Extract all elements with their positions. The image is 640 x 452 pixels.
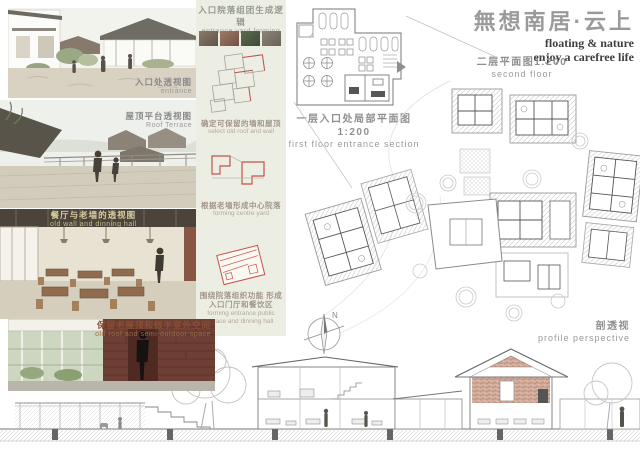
step-caption-1: 确定可保留的墙和屋顶 select old roof and wall (198, 119, 284, 137)
step-caption-1-en: select old roof and wall (198, 128, 284, 136)
step-caption-2-en: forming centre yard (198, 210, 284, 218)
site-photo-2 (220, 31, 239, 46)
section-label-en: profile perspective (490, 333, 630, 345)
roof-terrace-caption-cn: 屋顶平台透视图 (125, 112, 192, 122)
compass-n-label: N (332, 311, 338, 320)
site-photo-4 (262, 31, 281, 46)
dining-hall-caption: 餐厅与老墙的透视图 old wall and dinning hall (50, 211, 137, 229)
site-photo-1 (199, 31, 218, 46)
roof-terrace-caption-en: Roof Terrace (125, 122, 192, 130)
process-title-cn: 入口院落组团生成逻辑 (196, 4, 286, 28)
semi-outdoor-caption: 保留老屋顶和做半室外空间 old roof and semi-outdoor s… (95, 321, 211, 339)
semi-outdoor-caption-en: old roof and semi-outdoor space (95, 331, 211, 339)
section-label-cn: 剖透视 (490, 320, 630, 333)
site-photo-3 (241, 31, 260, 46)
roof-terrace-rendering: 屋顶平台透视图 Roof Terrace (0, 100, 196, 208)
entrance-rendering: 入口处透视图 entrance (8, 8, 196, 98)
step-caption-1-cn: 确定可保留的墙和屋顶 (198, 119, 284, 128)
second-floor-site-plan (300, 75, 640, 337)
process-strip: 入口院落组团生成逻辑 entrance yard forming 确定可保留的墙… (196, 0, 286, 336)
step-caption-3-cn: 围绕院落组织功能 形成入口门厅和餐饮区 (198, 291, 284, 310)
roof-terrace-caption: 屋顶平台透视图 Roof Terrace (125, 112, 192, 130)
entrance-caption-en: entrance (135, 88, 192, 96)
step-diagram-functions (208, 242, 274, 290)
step-diagram-centre-yard (202, 146, 280, 198)
section-label: 剖透视 profile perspective (490, 320, 630, 345)
entrance-caption: 入口处透视图 entrance (135, 78, 192, 96)
step-caption-2: 根据老墙形成中心院落 forming centre yard (198, 201, 284, 219)
dining-hall-caption-en: old wall and dinning hall (50, 221, 137, 229)
presentation-board: 入口处透视图 entrance (0, 0, 640, 452)
entrance-caption-cn: 入口处透视图 (135, 78, 192, 88)
step-diagram-select-walls (200, 50, 282, 114)
semi-outdoor-rendering: 保留老屋顶和做半室外空间 old roof and semi-outdoor s… (8, 319, 215, 391)
step-caption-2-cn: 根据老墙形成中心院落 (198, 201, 284, 210)
dining-hall-rendering: 餐厅与老墙的透视图 old wall and dinning hall (0, 209, 196, 319)
dining-hall-caption-cn: 餐厅与老墙的透视图 (50, 211, 137, 221)
semi-outdoor-caption-cn: 保留老屋顶和做半室外空间 (95, 321, 211, 331)
site-photo-row (199, 31, 281, 46)
